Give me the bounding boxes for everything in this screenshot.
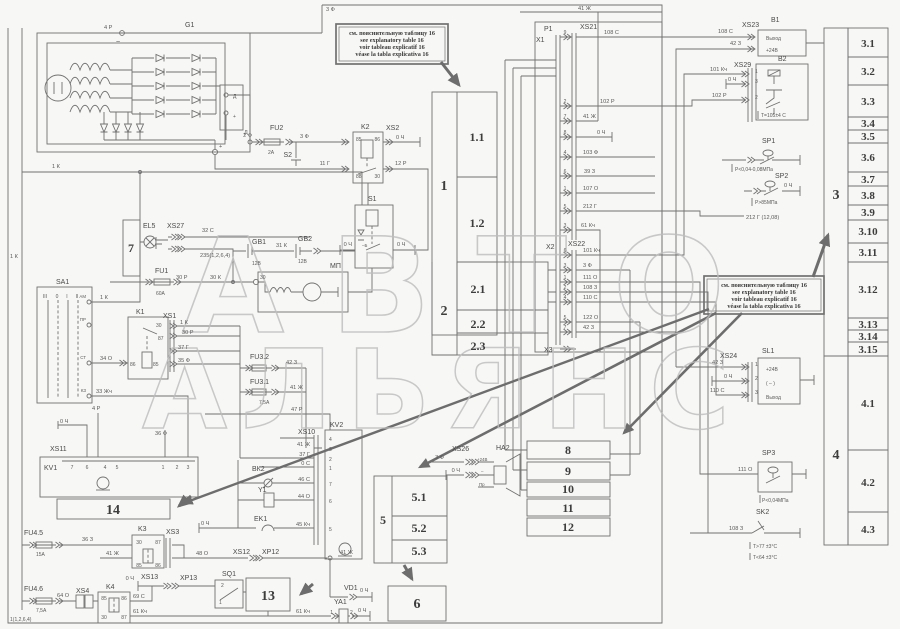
component-label: P1 (544, 26, 553, 33)
note-line: см. пояснительную таблицу 16 (721, 282, 807, 289)
component-label: EL5 (143, 223, 156, 230)
wire-label: 101 Кч (710, 67, 727, 73)
watermark: АВТО АЛЬЯНС (142, 210, 771, 454)
pin-number: 1 (219, 600, 222, 606)
wire-label: 11 Г (320, 161, 330, 167)
wire-label: 1 К (52, 164, 61, 170)
pin-number: 4 (104, 465, 107, 471)
value-label: 15А (36, 552, 46, 558)
value-label: 12В (298, 259, 308, 265)
wire-label: 1 К (10, 254, 19, 260)
wire-label: 0 Ч (344, 242, 353, 248)
value-label: 60А (156, 291, 166, 297)
pin-number: 1 (330, 610, 333, 616)
component-label: XS1 (163, 313, 176, 320)
component-label: K4 (106, 584, 115, 591)
wire-label: 1 К (180, 320, 189, 326)
wire-label: 42 З (730, 41, 742, 47)
pin-number: 5 (564, 204, 567, 210)
wire-label: 2 Ф (243, 133, 252, 139)
pin-number: 6 (86, 465, 89, 471)
block-label: 3.15 (858, 344, 878, 356)
wire-label: 41 Ж (578, 6, 592, 12)
contact-label: ПР (80, 317, 86, 322)
component-label: VD1 (344, 585, 358, 592)
wire-label: 36 Ф (155, 431, 167, 437)
switch-position: 0 (56, 294, 59, 300)
wire-label: 64 О (57, 593, 70, 599)
pin-number: 87 (121, 615, 127, 621)
component-label: S2 (283, 152, 292, 159)
value-label: 212 Г (12,08) (746, 215, 779, 221)
pin-number: 1 (755, 362, 758, 368)
value-label: 1(1,2,6,4) (10, 617, 32, 623)
wire-label: 69 С (133, 594, 145, 600)
value-label: 2А (268, 150, 275, 156)
component-label: XS22 (568, 241, 585, 248)
block-label: 8 (565, 443, 571, 457)
pin-number: 87 (158, 336, 164, 342)
wire-label: 107 О (583, 186, 599, 192)
terminal-label: + (233, 114, 236, 120)
block-label: 7 (128, 241, 134, 255)
switch-position: III (43, 294, 47, 300)
wire-label: 44 О (298, 494, 311, 500)
component-label: SP3 (762, 450, 775, 457)
block-label: 11 (562, 501, 573, 515)
wire-label: 0 Ч (397, 242, 406, 248)
component-label: EK1 (254, 516, 267, 523)
component-label: Х2 (546, 244, 555, 251)
block-label: 3.14 (858, 331, 878, 343)
ac-symbol: ~ (116, 39, 120, 46)
pin-number: 7 (564, 114, 567, 120)
value-label: 7,5А (259, 400, 270, 406)
component-label: XS24 (720, 353, 737, 360)
component-label: FU4.5 (24, 530, 43, 537)
pin-number: 2 (329, 457, 332, 463)
value-label: Р<0,04-0,08МПа (735, 167, 773, 173)
pin-number: 2 (350, 610, 353, 616)
wire-label: 41 Ж (340, 550, 354, 556)
block-label: 3.4 (861, 118, 875, 130)
component-label: XS12 (233, 549, 250, 556)
wire-label: 212 Г (583, 204, 597, 210)
pin-number: 30 (374, 174, 380, 180)
block-label: 2 (441, 304, 448, 319)
component-label: XP13 (180, 575, 197, 582)
block-label: 1.2 (470, 216, 485, 230)
pin-number: 85 (101, 596, 107, 602)
wire-label: 41 Ж (290, 385, 304, 391)
wire-label: 41 Ж (106, 551, 120, 557)
wire-label: 37 Г (299, 452, 310, 458)
terminal-label: ( – ) (766, 381, 775, 387)
wire-label: 32 С (202, 228, 214, 234)
wire-label: 0 Ч (724, 374, 733, 380)
block-label: 3.11 (859, 247, 878, 259)
schematic-sheet: АВТО АЛЬЯНС 4 Р ~ G1 Д + Д + FU2 2А 2 Ф … (0, 0, 900, 629)
block-label: 4.3 (861, 524, 875, 536)
wire-label: 61 Кч (133, 609, 147, 615)
component-label: FU2 (270, 125, 283, 132)
wire-label: 30 Р (182, 330, 194, 336)
block-label: 14 (106, 503, 120, 518)
terminal-label: +24В (766, 48, 778, 54)
value-label: Т<64 ±3°С (753, 555, 777, 561)
wire-label: 30 К (210, 275, 222, 281)
block-label: 3.13 (858, 319, 878, 331)
pin-number: 3 (755, 390, 758, 396)
wire-label: 61 Кч (581, 223, 595, 229)
contact-label: СТ (80, 355, 86, 360)
wire-label: 108 С (718, 29, 733, 35)
block-label: 4.2 (861, 477, 875, 489)
switch-position: I (66, 294, 67, 300)
block-label: 3.5 (861, 131, 875, 143)
block-label: 2.1 (471, 282, 486, 296)
pin-number: 8 (564, 130, 567, 136)
pin-number: 85 (136, 563, 142, 569)
component-label: XS26 (452, 446, 469, 453)
pin-number: 1 (162, 465, 165, 471)
component-label: XS13 (141, 574, 158, 581)
block-label: 13 (261, 589, 275, 604)
block-label: 9 (565, 464, 571, 478)
pin-number: 5 (329, 527, 332, 533)
component-label: K1 (136, 309, 145, 316)
wire-label: 48 О (196, 551, 209, 557)
pin-number: 2 (755, 95, 758, 101)
wire-label: 3 Ф (435, 455, 444, 461)
pin-number: 4 (329, 437, 332, 443)
component-label: FU3.1 (250, 379, 269, 386)
pin-number: 2 (176, 465, 179, 471)
block-label: 3.9 (861, 207, 875, 219)
block-label: 5.2 (412, 521, 427, 535)
pin-number: 30 (136, 540, 142, 546)
component-label: FU4.6 (24, 586, 43, 593)
pin-number: 2 (564, 99, 567, 105)
wire-label: 102 Р (600, 99, 615, 105)
pin-number: 1 (564, 275, 567, 281)
component-label: XS27 (167, 223, 184, 230)
wire-label: 0 Ч (360, 588, 369, 594)
pin-number: 5 (564, 315, 567, 321)
wire-label: 0 Ч (597, 130, 606, 136)
wire-label: 47 Р (291, 407, 303, 413)
pin-number: 7 (71, 465, 74, 471)
pin-number: 1 (564, 186, 567, 192)
wire-label: 39 З (584, 169, 596, 175)
wire-label: 1 К (100, 295, 109, 301)
component-label: SP1 (762, 138, 775, 145)
pin-number: 9 (564, 30, 567, 36)
block-label: 3.8 (861, 190, 875, 202)
component-label: XS10 (298, 429, 315, 436)
value-label: Т=105±4 С (761, 113, 786, 119)
wire-label: 30 Р (176, 275, 188, 281)
pin-number: 2 (564, 285, 567, 291)
wire-label: 41 Ж (583, 114, 597, 120)
note-line: voir tableau explicatif 16 (359, 44, 424, 51)
terminal-label: + (219, 144, 222, 150)
value-label: 12В (252, 261, 262, 267)
block-label: 1.1 (470, 130, 485, 144)
block-label: 5 (380, 513, 386, 527)
terminal-label: +24В (766, 367, 778, 373)
contact-label: КЗ (81, 388, 87, 393)
wire-label: 42 З (712, 360, 724, 366)
wire-label: 3 Ф (583, 263, 592, 269)
pin-number: 85 (153, 362, 159, 368)
component-label: HA2 (496, 445, 510, 452)
component-label: GB1 (252, 239, 266, 246)
wire-label: 108 С (604, 30, 619, 36)
pin-number: 7 (329, 482, 332, 488)
wire-label: 4 Р (104, 25, 113, 31)
value-label: Р>85МПа (755, 200, 778, 206)
component-label: S1 (368, 196, 377, 203)
block-label: 10 (562, 482, 574, 496)
node-label: 30 (260, 275, 266, 281)
component-label: FU3.2 (250, 354, 269, 361)
pin-number: 86 (121, 596, 127, 602)
component-label: KV1 (44, 465, 57, 472)
component-label: B1 (771, 17, 780, 24)
block-label: 12 (562, 520, 574, 534)
pin-number: 2 (221, 583, 224, 589)
wire-label: 12 Р (395, 161, 407, 167)
block-label: 3.2 (861, 66, 875, 78)
pin-number: 3 (329, 447, 332, 453)
component-label: МП (330, 263, 341, 270)
pin-number: 86 (374, 137, 380, 143)
pin-number: 3 (564, 223, 567, 229)
component-label: XS3 (166, 529, 179, 536)
component-label: XS4 (76, 588, 89, 595)
component-label: SA1 (56, 279, 69, 286)
note-line: voir tableau explicatif 16 (731, 296, 796, 303)
pin-number: 7 (564, 325, 567, 331)
pin-number: 86 (155, 563, 161, 569)
block-label: 4 (833, 448, 840, 463)
wire-label: 42 З (286, 360, 298, 366)
note-line: véase la tabla explicativa 16 (355, 51, 428, 58)
pin-number: 6 (564, 248, 567, 254)
wiring-diagram: АВТО АЛЬЯНС 4 Р ~ G1 Д + Д + FU2 2А 2 Ф … (0, 0, 900, 629)
wire-label: 36 З (82, 537, 94, 543)
wire-label: 0 С (301, 461, 310, 467)
block-label: 3 (833, 188, 840, 203)
wire-label: 102 Р (712, 93, 727, 99)
pin-number: 3 (564, 263, 567, 269)
note-line: see explanatory table 16 (360, 37, 423, 44)
pin-number: 4 (564, 150, 567, 156)
wire-label: 0 Ч (126, 576, 135, 582)
terminal-label: – (481, 469, 484, 474)
note-line: see explanatory table 16 (732, 289, 795, 296)
wire-label: 0 Ч (396, 135, 405, 141)
component-label: XS29 (734, 62, 751, 69)
wire-label: 111 О (738, 467, 753, 473)
block-label: 5.1 (412, 490, 427, 504)
pin-number: 6 (329, 499, 332, 505)
component-label: SQ1 (222, 571, 236, 578)
wire-label: 34 О (100, 356, 113, 362)
pin-number: 1 (329, 466, 332, 472)
component-label: KV2 (330, 422, 343, 429)
component-label: XS21 (580, 24, 597, 31)
value-label: 235(1,2,6,4) (200, 253, 230, 259)
wire-label: 122 О (583, 315, 599, 321)
wire-label: 42 З (583, 325, 595, 331)
pin-number: 88 (356, 174, 362, 180)
terminal-label: Выход (766, 395, 781, 401)
component-label: XS23 (742, 22, 759, 29)
wire-label: 108 З (729, 526, 744, 532)
wire-label: 45 Кч (296, 522, 310, 528)
wire-label: 0 Ч (201, 521, 210, 527)
watermark-line2: АЛЬЯНС (142, 326, 744, 454)
value-label: Р<0,04МПа (762, 498, 789, 504)
block-label: 3.12 (858, 284, 878, 296)
block-label: 3.3 (861, 96, 875, 108)
wire-label: 0 Ч (60, 419, 69, 425)
wire-label: 0 Ч (452, 468, 461, 474)
wire-label: 3 Ф (326, 7, 335, 13)
wire-label: 0 Ч (728, 77, 737, 83)
pin-number: 30 (101, 615, 107, 621)
component-label: XS11 (50, 446, 67, 453)
wire-label: 108 З (583, 285, 598, 291)
component-label: G1 (185, 22, 194, 29)
block-label: 3.10 (858, 226, 878, 238)
block-label: 5.3 (412, 544, 427, 558)
component-label: XS2 (386, 125, 399, 132)
component-label: YA1 (334, 599, 347, 606)
wire-label: 37 Г (178, 345, 189, 351)
wire-label: 111 О (583, 275, 598, 281)
terminal-label: –Б (362, 243, 367, 248)
block-label: 4.1 (861, 398, 875, 410)
wire-label: 110 С (710, 388, 725, 394)
block-label: 6 (414, 597, 421, 612)
wire-label: 41 Ж (297, 442, 311, 448)
value-label: 7,5А (36, 608, 47, 614)
component-label: ВК2 (252, 466, 265, 473)
pin-number: 5 (116, 465, 119, 471)
wire-label: 0 Ч (784, 183, 793, 189)
block-label: 2.3 (471, 339, 486, 353)
wire-label: 3 Ф (300, 134, 309, 140)
pin-number: 1 (755, 69, 758, 75)
wire-label: 46 С (298, 477, 310, 483)
component-label: X1 (536, 37, 545, 44)
block-label: 3.1 (861, 38, 875, 50)
wire-label: 33 Жч (96, 389, 112, 395)
component-label: K3 (138, 526, 147, 533)
wire-label: 0 Ч (358, 608, 367, 614)
component-label: SK2 (756, 509, 769, 516)
wire-label: 35 Ф (178, 358, 190, 364)
component-label: B2 (778, 56, 787, 63)
contact-label: АМ (79, 294, 86, 299)
diode-symbols (101, 55, 201, 133)
note-line: véase la tabla explicativa 16 (727, 303, 800, 310)
component-label: GB2 (298, 236, 312, 243)
pin-number: 4 (564, 295, 567, 301)
terminal-label: Выход (766, 36, 781, 42)
pin-number: 86 (130, 362, 136, 368)
pin-number: 3 (187, 465, 190, 471)
pin-number: 3 (755, 79, 758, 85)
wire-label: 103 Ф (583, 150, 598, 156)
block-label: 3.6 (861, 152, 875, 164)
component-label: Х3 (544, 347, 553, 354)
component-label: SL1 (762, 348, 775, 355)
component-label: Y1 (258, 487, 267, 494)
value-label: Т>77 ±3°С (753, 544, 777, 550)
component-label: FU1 (155, 268, 168, 275)
wire-label: 4 Р (92, 406, 101, 412)
pin-number: 6 (564, 169, 567, 175)
switch-position: II (76, 294, 79, 300)
pin-number: 87 (155, 540, 161, 546)
terminal-label: Пр (479, 482, 485, 487)
pin-number: 85 (356, 137, 362, 143)
pin-number: 2 (755, 376, 758, 382)
block-label: 2.2 (471, 317, 486, 331)
note-line: см. пояснительную таблицу 16 (349, 30, 435, 37)
component-label: K2 (361, 124, 370, 131)
wire-label: 31 К (276, 243, 288, 249)
component-label: XP12 (262, 549, 279, 556)
wire-label: 61 Кч (296, 609, 310, 615)
pin-number: 30 (156, 323, 162, 329)
terminal-label: +24В (477, 457, 487, 462)
block-label: 3.7 (861, 174, 875, 186)
wire-label: 110 С (583, 295, 598, 301)
wire-label: 101 Кч (583, 248, 600, 254)
component-label: SP2 (775, 173, 788, 180)
block-label: 1 (441, 179, 448, 194)
